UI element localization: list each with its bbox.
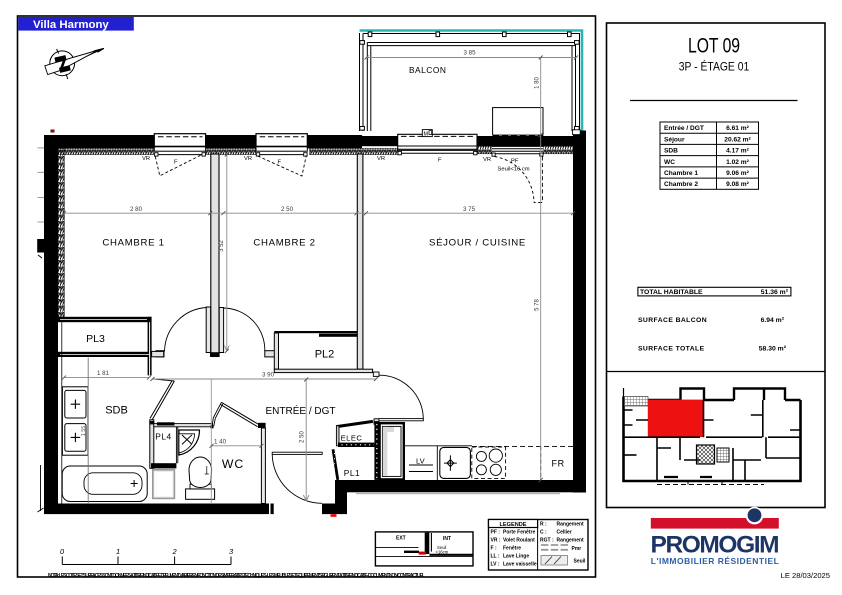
svg-text:PL2: PL2 xyxy=(315,349,335,361)
svg-text:9.08 m²: 9.08 m² xyxy=(726,181,750,188)
svg-text:2 50: 2 50 xyxy=(300,431,306,443)
svg-text:Seuil<16 cm: Seuil<16 cm xyxy=(498,166,530,172)
svg-text:Villa Harmony: Villa Harmony xyxy=(33,19,109,31)
svg-text:F :: F : xyxy=(491,546,497,552)
svg-text:INT: INT xyxy=(443,536,451,542)
svg-text:5 78: 5 78 xyxy=(535,299,541,311)
svg-text:Cellier: Cellier xyxy=(557,530,572,536)
svg-text:CHAMBRE 1: CHAMBRE 1 xyxy=(102,238,164,249)
svg-text:BALCON: BALCON xyxy=(409,65,446,75)
svg-text:SÉJOUR / CUISINE: SÉJOUR / CUISINE xyxy=(429,238,526,249)
svg-text:C :: C : xyxy=(540,530,547,536)
svg-text:LV :: LV : xyxy=(491,562,500,568)
svg-text:20.62 m²: 20.62 m² xyxy=(724,136,751,143)
svg-text:58.30 m²: 58.30 m² xyxy=(759,346,787,353)
svg-text:Rangement: Rangement xyxy=(557,522,585,528)
svg-text:RGT :: RGT : xyxy=(540,538,554,544)
svg-text:SURFACE BALCON: SURFACE BALCON xyxy=(638,317,707,324)
svg-text:TOTAL HABITABLE: TOTAL HABITABLE xyxy=(640,289,703,296)
svg-text:Entrée / DGT: Entrée / DGT xyxy=(664,125,704,132)
svg-text:EXT: EXT xyxy=(396,536,406,542)
svg-text:CHAMBRE 2: CHAMBRE 2 xyxy=(253,238,315,249)
svg-text:Volet Roulant: Volet Roulant xyxy=(503,538,535,544)
svg-text:VR: VR xyxy=(483,157,491,163)
svg-text:VR: VR xyxy=(377,156,385,162)
svg-text:Lave Linge: Lave Linge xyxy=(503,554,529,560)
svg-text:F: F xyxy=(278,159,282,165)
svg-text:2 50: 2 50 xyxy=(281,206,294,213)
svg-text:Séjour: Séjour xyxy=(664,136,685,143)
svg-text:LEGENDE: LEGENDE xyxy=(499,522,526,528)
svg-text:PF :: PF : xyxy=(491,530,501,536)
svg-text:VR: VR xyxy=(244,156,252,162)
svg-text:VR: VR xyxy=(142,156,150,162)
svg-text:4.17 m²: 4.17 m² xyxy=(726,148,750,155)
svg-text:1: 1 xyxy=(116,547,120,556)
svg-text:WC: WC xyxy=(664,159,675,166)
svg-text:SURFACE TOTALE: SURFACE TOTALE xyxy=(638,346,705,353)
svg-text:1 81: 1 81 xyxy=(97,370,110,377)
svg-text:M: M xyxy=(424,132,429,138)
svg-text:Seuil: Seuil xyxy=(574,559,587,565)
svg-text:PF: PF xyxy=(511,159,519,165)
svg-text:FR: FR xyxy=(552,459,565,469)
svg-text:1 40: 1 40 xyxy=(214,439,227,446)
svg-text:2: 2 xyxy=(172,547,177,556)
svg-text:ENTRÉE / DGT: ENTRÉE / DGT xyxy=(265,404,335,417)
svg-text:Chambre 1: Chambre 1 xyxy=(664,170,698,177)
svg-text:LV: LV xyxy=(416,457,426,466)
svg-text:WC: WC xyxy=(222,457,244,471)
svg-text:Fenêtre: Fenêtre xyxy=(503,546,521,552)
svg-text:SDB: SDB xyxy=(664,148,678,155)
svg-text:<16cm: <16cm xyxy=(436,550,449,555)
svg-text:1 80: 1 80 xyxy=(535,77,541,89)
svg-text:3 90: 3 90 xyxy=(262,372,275,379)
svg-text:3 85: 3 85 xyxy=(463,50,476,57)
svg-text:F: F xyxy=(438,158,442,164)
svg-text:PL1: PL1 xyxy=(344,468,360,478)
svg-text:3P - ÉTAGE 01: 3P - ÉTAGE 01 xyxy=(679,60,749,74)
svg-text:PROMOGIM: PROMOGIM xyxy=(651,532,780,559)
svg-text:3 52: 3 52 xyxy=(219,240,225,252)
svg-text:R :: R : xyxy=(540,522,547,528)
svg-text:6.61 m²: 6.61 m² xyxy=(726,125,750,132)
svg-text:VR :: VR : xyxy=(491,538,501,544)
svg-text:Lave vaisselle: Lave vaisselle xyxy=(503,562,537,568)
svg-text:Pmr: Pmr xyxy=(572,546,582,552)
svg-text:6.94 m²: 6.94 m² xyxy=(761,317,785,324)
svg-text:SDB: SDB xyxy=(105,405,128,417)
svg-text:LE 28/03/2025: LE 28/03/2025 xyxy=(781,571,830,580)
svg-text:PL3: PL3 xyxy=(86,333,105,345)
svg-text:Rangement: Rangement xyxy=(557,538,585,544)
svg-text:NOTA : LES COTES ET SURFACES S: NOTA : LES COTES ET SURFACES SONT DONNEE… xyxy=(48,573,425,579)
svg-text:L'IMMOBILIER RÉSIDENTIEL: L'IMMOBILIER RÉSIDENTIEL xyxy=(651,556,779,566)
svg-text:LL :: LL : xyxy=(491,554,500,560)
svg-text:Chambre 2: Chambre 2 xyxy=(664,181,698,188)
svg-text:LOT 09: LOT 09 xyxy=(688,33,740,57)
svg-text:PL4: PL4 xyxy=(155,432,171,442)
svg-text:F: F xyxy=(174,159,178,165)
svg-text:51.36 m²: 51.36 m² xyxy=(761,289,789,296)
svg-text:1 55: 1 55 xyxy=(81,426,87,437)
svg-text:2 80: 2 80 xyxy=(130,206,143,213)
svg-text:Porte Fenêtre: Porte Fenêtre xyxy=(503,530,535,536)
svg-text:ELEC: ELEC xyxy=(341,434,363,443)
svg-text:3 75: 3 75 xyxy=(463,206,476,213)
svg-text:1.02 m²: 1.02 m² xyxy=(726,159,750,166)
svg-text:9.06 m²: 9.06 m² xyxy=(726,170,750,177)
